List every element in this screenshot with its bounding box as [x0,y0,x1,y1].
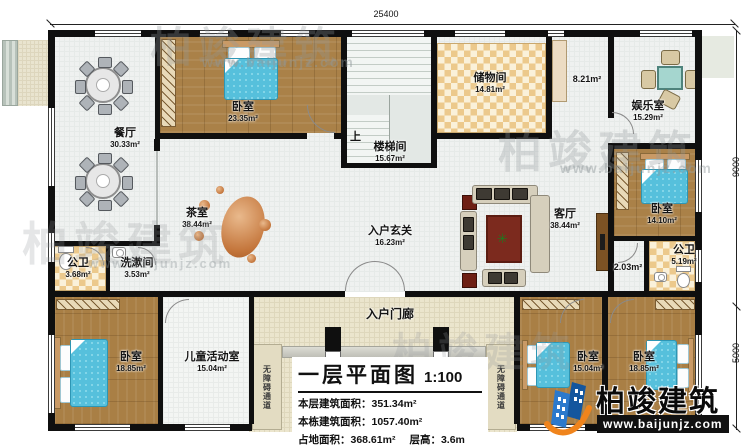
info-label: 占地面积： [298,434,351,446]
bed [222,40,280,102]
chair [75,80,86,94]
wall [610,236,696,241]
area-label-niche: 2.03m² [614,262,643,272]
wardrobe [56,299,120,310]
wall [249,297,254,424]
sofa-set: ✳ [458,183,550,288]
room-label-storage: 储物间14.81m² [474,72,507,94]
wall [106,246,110,291]
brand-logo-icon [542,380,594,443]
brand-logo-name: 柏竣建筑 [596,378,720,420]
wall [154,139,160,151]
room-label-living: 客厅38.44m² [550,208,580,230]
wall [608,143,702,149]
toilet-tank [58,246,74,253]
window [548,30,564,37]
chair [98,104,112,115]
ramp-right-label: 无障碍通道 [496,365,507,410]
brand-logo-url: www.baijunjz.com [597,415,729,433]
decorative-stone [216,186,224,194]
wall [284,291,345,297]
wall [48,241,160,246]
sofa-cushion [494,188,510,200]
info-value: 1057.40m² [372,416,423,428]
wall [155,37,160,133]
game-table [657,66,683,90]
info-value: 368.61m² [351,434,396,446]
wall [405,291,517,297]
ramp-right: 无障碍通道 [486,344,516,430]
wardrobe [161,39,176,127]
bed [640,153,690,205]
chair [75,176,86,190]
wardrobe [655,299,695,310]
room-label-bedroom-bl: 卧室18.85m² [116,351,146,373]
chair [122,176,133,190]
wall [514,297,520,424]
room-label-bath-right: 公卫5.19m² [671,244,696,266]
wall [517,291,702,297]
room-label-bedroom-right: 卧室14.10m² [647,203,677,225]
sofa-cushion [463,217,474,232]
chair [98,57,112,68]
info-label: 本栋建筑面积： [298,416,372,428]
bed-duvet [224,58,278,100]
chair [661,50,680,65]
brand-logo: 柏竣建筑 www.baijunjz.com [542,378,738,442]
chair [122,80,133,94]
info-label: 层高： [409,434,441,446]
wall [341,37,347,168]
info-label: 本层建筑面积： [298,398,372,410]
left-side-porch [18,40,48,106]
wall [158,297,163,424]
room-label-stairwell: 楼梯间15.67m² [374,141,407,163]
chair [641,70,656,89]
sofa-cushion [463,235,474,250]
window [95,30,141,37]
window [352,30,424,37]
sofa-cushion [512,188,528,200]
wardrobe [616,152,629,210]
chair [98,153,112,164]
toilet-tank [676,266,691,272]
top-dimension-line [50,24,735,25]
decorative-stone [194,231,204,241]
right-upper-dimension-label: 9000 [731,147,741,187]
porch-column [433,327,449,351]
area-label-corridor: 8.21m² [573,74,602,84]
room-label-bedroom-top: 卧室23.35m² [228,101,258,123]
dining-table [75,57,131,113]
wall [155,133,307,139]
sofa-cushion [504,272,518,284]
title-info-line: 本层建筑面积：351.34m² [298,396,482,411]
title-info-line: 本栋建筑面积：1057.40m² [298,414,482,429]
left-side-steps [2,40,18,106]
decorative-stone [259,219,271,231]
bed [54,337,110,409]
ramp-left: 无障碍通道 [252,344,282,430]
room-label-tea: 茶室38.44m² [182,207,212,229]
title-block: 一层平面图 1:100 本层建筑面积：351.34m² 本栋建筑面积：1057.… [292,357,488,443]
plan-scale: 1:100 [424,369,462,386]
window [455,30,505,37]
decorative-stone [247,254,256,263]
wall [608,30,614,118]
pillow [677,344,689,364]
window [75,424,130,431]
open-boundary [156,151,158,225]
info-value: 351.34m² [372,398,417,410]
window [640,30,692,37]
chaise [530,195,550,273]
right-side-eave [702,36,734,78]
window [200,30,228,37]
toilet [676,266,691,288]
title-info-line: 占地面积：368.61m²层高：3.6m [298,432,482,447]
stair-up-label: 上 [350,128,361,144]
window [281,30,309,37]
dining-table [75,153,131,209]
room-label-foyer: 入户玄关16.23m² [368,225,412,247]
room-label-dining: 餐厅30.33m² [110,127,140,149]
floor-plan-canvas: 25400 9000 5000 无障碍通道 无障碍通道 [0,0,750,448]
right-lower-dimension-label: 5000 [731,333,741,373]
window [48,335,55,413]
duct [552,40,567,102]
bed-duvet [70,339,108,407]
sofa-cushion [476,188,492,200]
room-label-washroom: 洗漱间3.53m² [121,257,154,279]
room-label-bath-left: 公卫3.68m² [65,257,90,279]
plant: ✳ [497,231,508,247]
room-label-bedroom-br1: 卧室15.04m² [573,351,603,373]
sofa-cushion [488,272,502,284]
sink [654,272,667,282]
wall [546,37,552,133]
wall [431,133,552,139]
stair-treads [347,37,431,95]
bed-duvet [641,169,688,204]
toilet-bowl [677,273,690,288]
room-label-porch: 入户门廊 [366,308,414,322]
porch-column [325,327,341,351]
room-label-bedroom-br2: 卧室18.85m² [629,351,659,373]
plan-title: 一层平面图 [298,359,418,389]
wall [341,163,437,168]
window [48,108,55,186]
ramp-left-label: 无障碍通道 [262,365,273,410]
title-row: 一层平面图 1:100 [298,359,482,393]
side-table [462,273,477,288]
chair [98,200,112,211]
info-value: 3.6m [441,434,465,446]
wall [431,37,437,168]
window [695,160,702,212]
room-label-entertainment: 娱乐室15.29m² [632,100,665,122]
window [185,424,230,431]
room-label-kids: 儿童活动室15.04m² [185,351,240,373]
window [48,233,55,262]
wall [644,241,649,291]
top-dimension-label: 25400 [360,9,412,19]
